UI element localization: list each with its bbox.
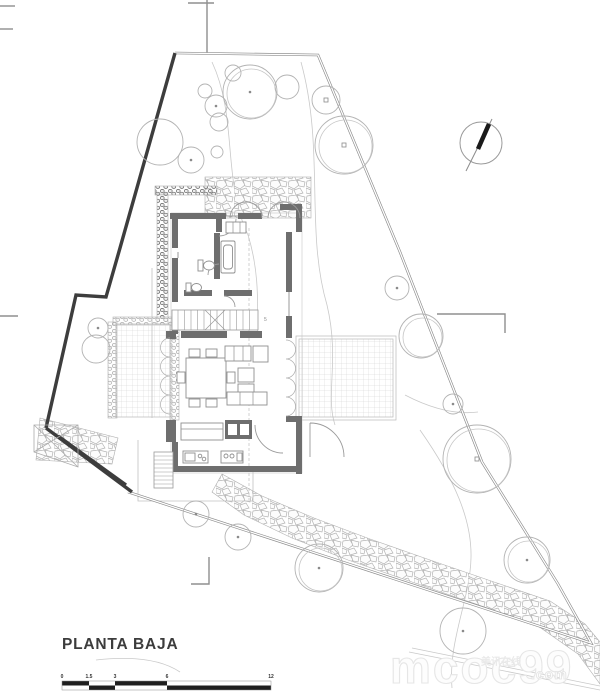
furniture [177, 346, 268, 463]
watermark: mcoc99 美讯在线 .com [390, 641, 573, 693]
scale-label: 1.5 [86, 674, 93, 680]
tree [223, 65, 277, 119]
dining-table [186, 358, 226, 398]
tree [183, 501, 209, 527]
kitchen [181, 420, 252, 463]
tree [275, 75, 299, 99]
watermark-cjk-text: 美讯在线 [481, 655, 521, 668]
tree [315, 116, 373, 174]
terrace-west [116, 324, 170, 417]
terrace-east [299, 339, 393, 417]
terraces [116, 324, 396, 420]
tree [443, 425, 511, 493]
exterior-steps [154, 452, 173, 488]
closet [226, 222, 246, 233]
north-arrow-icon [460, 119, 502, 171]
tree [385, 276, 409, 300]
tree [211, 146, 223, 158]
tree [137, 119, 183, 165]
scale-label: 3 [114, 674, 117, 680]
scale-bar: 01.53612 [61, 674, 274, 690]
toilet [198, 260, 215, 271]
scale-label: 12 [268, 674, 274, 680]
tree [399, 314, 443, 358]
drawing-title: PLANTA BAJA [62, 636, 178, 653]
tree [210, 113, 228, 131]
tree [295, 544, 343, 592]
scale-label: 6 [166, 674, 169, 680]
stairs-count-label: 5 [264, 317, 267, 323]
stone-paving [36, 177, 600, 684]
scale-labels: 01.53612 [61, 674, 274, 680]
tree [82, 335, 110, 363]
watermark-domain: .com [531, 666, 568, 682]
tree [198, 84, 212, 98]
scale-label: 0 [61, 674, 64, 680]
tree [178, 147, 204, 173]
floor-plan-page: 5 [0, 0, 600, 697]
site-plan-drawing: 5 [0, 0, 600, 697]
bidet [186, 283, 202, 292]
